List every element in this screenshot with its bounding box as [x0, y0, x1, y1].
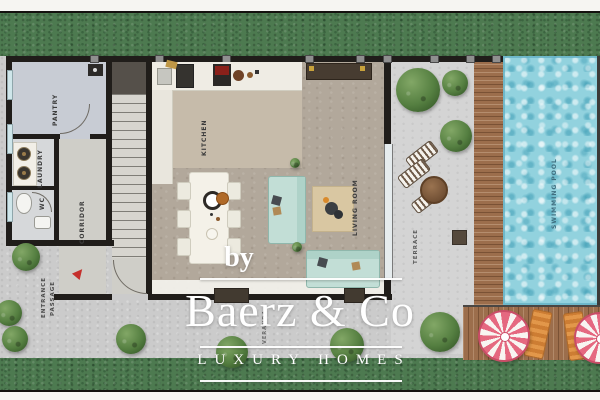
dining-chair [227, 182, 241, 200]
kitchen-floor [172, 90, 302, 168]
wall-column [430, 55, 439, 63]
pillow-icon [272, 206, 281, 215]
dining-chair [177, 210, 191, 228]
window-left-3 [7, 192, 13, 222]
bush [2, 326, 28, 352]
watermark-rule [200, 380, 402, 382]
pantry-door-gap [60, 134, 90, 139]
pot-icon [247, 72, 253, 78]
wall-right-upper [384, 56, 391, 144]
houseplant-icon [290, 158, 300, 168]
plate-icon [206, 228, 218, 240]
cooktop-icon [215, 66, 229, 75]
bush [12, 243, 40, 271]
wall-column [492, 55, 501, 63]
wall-column [383, 55, 392, 63]
staircase [112, 94, 146, 258]
watermark-by: by [179, 242, 299, 274]
dining-chair [177, 182, 191, 200]
room-label-terrace: TERRACE [413, 220, 419, 264]
kitchen-counter-left [152, 90, 173, 184]
floor-plan-canvas: PANTRY LAUNDRY WC CORRIDOR KITCHEN LIVIN… [0, 0, 600, 400]
room-label-kitchen: KITCHEN [201, 100, 208, 156]
pillow-icon [351, 261, 360, 270]
room-label-laundry: LAUNDRY [37, 138, 44, 188]
washer-icon [17, 147, 31, 161]
pantry-cabinet-knob [93, 68, 97, 72]
pan-icon [233, 70, 244, 81]
wall-laundry-divider [6, 186, 54, 190]
kitchen-sink-icon [157, 68, 172, 85]
plate-icon [216, 192, 229, 205]
side-table-icon [334, 210, 343, 219]
bush [440, 120, 472, 152]
wall-column [356, 55, 365, 63]
planter-box [452, 230, 467, 245]
watermark-tagline: LUXURY HOMES [150, 352, 450, 369]
watermark-brand: Baerz & Co [150, 285, 450, 338]
jar-icon [255, 70, 259, 74]
room-label-wc: WC [39, 192, 46, 210]
window-left-1 [7, 70, 13, 100]
pool-deck-side [474, 56, 504, 305]
wall-column [466, 55, 475, 63]
oven-icon [176, 64, 194, 88]
wall-pantry-right [106, 56, 112, 246]
console-item [360, 66, 365, 71]
console-item [309, 66, 314, 71]
parasol-icon [478, 310, 530, 362]
toilet-icon [16, 193, 32, 214]
wall-column [90, 55, 99, 63]
dining-chair [227, 210, 241, 228]
watermark-rule [200, 278, 402, 280]
room-label-swimming-pool: SWIMMING POOL [551, 155, 558, 229]
bush [442, 70, 468, 96]
watermark-rule [200, 346, 402, 348]
label-entrance: ENTRANCE [41, 260, 47, 318]
table-item [210, 213, 213, 216]
bush [116, 324, 146, 354]
dryer-icon [17, 166, 31, 180]
wall-pantry-bottom [6, 134, 112, 139]
entry-door-gap [112, 294, 148, 300]
bush [396, 68, 440, 112]
room-label-living-room: LIVING ROOM [352, 170, 359, 236]
wc-sink-icon [34, 216, 51, 229]
label-passage: PASSAGE [50, 262, 56, 316]
sofa [306, 250, 380, 288]
room-label-corridor: CORRIDOR [79, 180, 86, 244]
bowl-icon [323, 197, 329, 203]
lawn-strip-top [0, 11, 600, 60]
wall-laundry-right [54, 139, 59, 246]
table-item [216, 217, 220, 221]
room-label-pantry: PANTRY [52, 78, 59, 126]
wall-column [305, 55, 314, 63]
rattan-table-icon [420, 176, 448, 204]
sliding-glass-door [384, 144, 393, 280]
